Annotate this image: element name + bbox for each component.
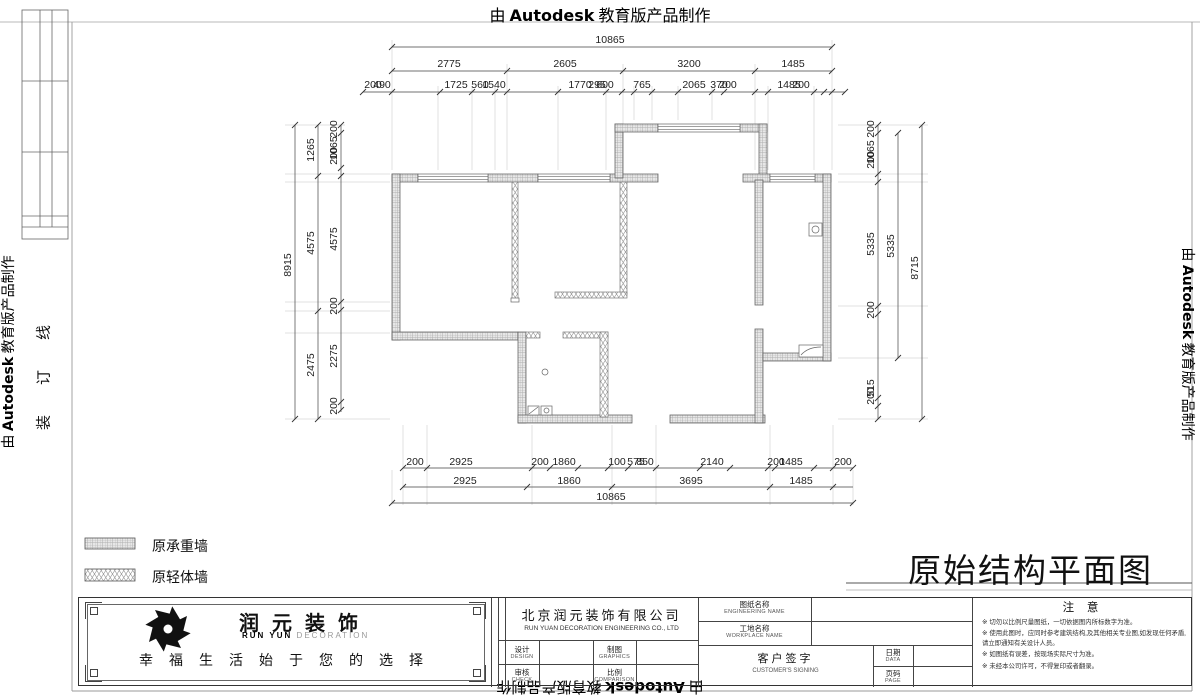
note-item: ※切勿以比例尺量图纸，一切依据图内所标数字为准。 — [982, 618, 1188, 627]
dim-label: 2925 — [449, 456, 473, 468]
margin-revision-table — [22, 10, 68, 239]
dim-label: 2065 — [682, 79, 706, 91]
banner-suffix: 教育版产品制作 — [598, 8, 710, 25]
corner-ornament — [469, 602, 486, 619]
field-workplace-name-cn: 工地名称 — [698, 624, 811, 633]
note-item: ※未经本公司许可，不得复印或者翻录。 — [982, 662, 1188, 671]
grid-line — [491, 598, 492, 687]
dim-label: 1540 — [482, 79, 506, 91]
dim-label: 600 — [596, 79, 614, 91]
field-page-cn: 页码 — [873, 669, 913, 678]
legend-label-load-bearing: 原承重墙 — [152, 536, 208, 556]
notes-panel: 注 意 ※切勿以比例尺量图纸，一切依据图内所标数字为准。 ※使用此图时，应同时参… — [974, 598, 1192, 671]
field-customer-signing-en: CUSTOMER'S SIGNING — [698, 668, 873, 674]
dim-label: 1725 — [444, 79, 468, 91]
grid-line — [498, 598, 499, 687]
light-walls — [512, 182, 627, 417]
dim-label: 200 — [328, 147, 340, 165]
note-item: ※使用此图时，应同时参考建筑结构,及其他相关专业图,如发现任何矛盾,请立即通知有… — [982, 629, 1188, 648]
dim-label: 200 — [865, 387, 877, 405]
floorplan-drawing: 10865 2775 2605 3200 1485 200 490 1725 5… — [0, 0, 1200, 700]
company-name-en: RUN YUAN DECORATION ENGINEERING CO., LTD — [505, 625, 698, 632]
field-engineering-name-en: ENGINEERING NAME — [698, 609, 811, 616]
corner-ornament — [85, 602, 102, 619]
legend-label-light-wall: 原轻体墙 — [152, 567, 208, 587]
dim-label: 1265 — [305, 138, 317, 162]
dim-label: 200 — [719, 79, 737, 91]
grid-line — [698, 621, 972, 622]
company-logo — [145, 606, 191, 652]
dim-label: 8715 — [909, 256, 921, 280]
dim-label: 490 — [373, 79, 391, 91]
brand-en-part1: RUN YUN — [242, 631, 292, 640]
note-marker: ※ — [982, 663, 987, 670]
dim-label: 1485 — [789, 475, 813, 487]
field-page: 页码 PAGE — [873, 669, 913, 685]
note-marker: ※ — [982, 630, 987, 637]
dim-label: 3200 — [677, 58, 701, 70]
field-date-cn: 日期 — [873, 648, 913, 657]
grid-line — [498, 664, 698, 665]
dim-label: 1860 — [557, 475, 581, 487]
dim-label: 5335 — [885, 234, 897, 258]
banner-brand: Autodesk — [1, 357, 17, 431]
dim-label: 765 — [633, 79, 651, 91]
dim-label: 2140 — [700, 456, 724, 468]
field-page-en: PAGE — [873, 678, 913, 685]
binding-line-label: 装订线 — [33, 283, 54, 443]
banner-brand: Autodesk — [1179, 265, 1195, 339]
notes-title: 注 意 — [974, 599, 1192, 615]
dim-label: 8915 — [282, 253, 294, 277]
autodesk-banner-top: 由 Autodesk 教育版产品制作 — [0, 2, 1200, 26]
dim-label: 2475 — [305, 353, 317, 377]
note-text: 切勿以比例尺量图纸，一切依据图内所标数字为准。 — [989, 619, 1136, 626]
dim-label: 100 — [608, 456, 626, 468]
corner-ornament — [469, 665, 486, 682]
banner-suffix: 教育版产品制作 — [2, 255, 17, 353]
field-check-cn: 审核 — [505, 668, 539, 677]
dim-label: 200 — [328, 297, 340, 315]
shower-tray-icon — [528, 406, 539, 415]
dim-label: 200 — [865, 120, 877, 138]
field-date: 日期 DATA — [873, 648, 913, 664]
floor-drain-icon — [542, 369, 548, 375]
grid-line — [972, 598, 973, 687]
dim-label: 10865 — [596, 491, 625, 503]
dim-label: 1485 — [781, 58, 805, 70]
field-graphics-cn: 制图 — [593, 645, 636, 654]
field-date-en: DATA — [873, 657, 913, 664]
dim-label: 200 — [865, 301, 877, 319]
company-name-cn: 北京润元装饰有限公司 — [505, 605, 698, 624]
dim-label: 850 — [636, 456, 654, 468]
dim-label: 10865 — [595, 34, 624, 46]
dim-label: 200 — [865, 151, 877, 169]
dim-label: 200 — [531, 456, 549, 468]
balcony-window — [658, 124, 740, 132]
washbasin-icon — [809, 223, 822, 236]
field-check: 审核 CHECK — [505, 668, 539, 684]
banner-prefix: 由 — [490, 8, 506, 25]
note-text: 如图纸有误差，按现场实际尺寸为准。 — [989, 651, 1098, 658]
note-text: 使用此图时，应同时参考建筑结构,及其他相关专业图,如发现任何矛盾,请立即通知有关… — [982, 630, 1186, 646]
note-text: 未经本公司许可，不得复印或者翻录。 — [989, 663, 1098, 670]
dim-label: 4575 — [305, 231, 317, 255]
dim-label: 2925 — [453, 475, 477, 487]
window — [770, 174, 815, 182]
dim-label: 200 — [406, 456, 424, 468]
sink-icon — [541, 406, 552, 415]
field-scale-en: COMPARISON — [593, 677, 636, 684]
note-marker: ※ — [982, 651, 987, 658]
load-bearing-walls — [392, 124, 831, 423]
dim-label: 200 — [792, 79, 810, 91]
dim-label: 1860 — [552, 456, 576, 468]
window — [538, 174, 610, 182]
bathtub-icon — [799, 345, 823, 357]
door-jamb — [511, 298, 519, 302]
field-engineering-name-cn: 图纸名称 — [698, 600, 811, 609]
extension-lines — [285, 40, 928, 505]
field-customer-signing-cn: 客户签字 — [698, 650, 873, 666]
title-block: 润元装饰 RUN YUN DECORATION 幸福生活始于您的选择 北京润元装… — [78, 597, 1192, 686]
fixtures — [511, 223, 823, 415]
field-graphics: 制图 GRAPHICS — [593, 645, 636, 661]
corner-ornament — [85, 665, 102, 682]
autodesk-banner-left: 由 Autodesk 教育版产品制作 — [0, 202, 18, 502]
field-design-cn: 设计 — [505, 645, 539, 654]
note-marker: ※ — [982, 619, 987, 626]
dim-label: 200 — [834, 456, 852, 468]
brand-en-part2: DECORATION — [297, 631, 370, 640]
field-scale: 比例 COMPARISON — [593, 668, 636, 684]
field-workplace-name-en: WORKPLACE NAME — [698, 633, 811, 640]
banner-prefix: 由 — [1179, 247, 1194, 261]
grid-line — [498, 640, 698, 641]
dim-label: 200 — [328, 120, 340, 138]
dim-label: 2275 — [328, 344, 340, 368]
field-customer-signing: 客户签字 CUSTOMER'S SIGNING — [698, 650, 873, 674]
legend-swatch-load-bearing — [85, 538, 135, 549]
legend-swatch-light-wall — [85, 569, 135, 581]
grid-line — [873, 666, 972, 667]
dim-label: 4575 — [328, 227, 340, 251]
field-scale-cn: 比例 — [593, 668, 636, 677]
brand-name-en: RUN YUN DECORATION — [242, 631, 369, 640]
dim-label: 2605 — [553, 58, 577, 70]
dim-label: 5335 — [865, 232, 877, 256]
field-graphics-en: GRAPHICS — [593, 654, 636, 661]
note-item: ※如图纸有误差，按现场实际尺寸为准。 — [982, 650, 1188, 659]
autodesk-banner-right: 由 Autodesk 教育版产品制作 — [1178, 194, 1198, 494]
window — [418, 174, 488, 182]
drawing-title: 原始结构平面图 — [908, 544, 1192, 592]
banner-suffix: 教育版产品制作 — [1179, 343, 1194, 441]
field-check-en: CHECK — [505, 677, 539, 684]
field-design: 设计 DESIGN — [505, 645, 539, 661]
grid-line — [698, 645, 972, 646]
banner-brand: Autodesk — [510, 6, 595, 25]
field-design-en: DESIGN — [505, 654, 539, 661]
dim-label: 200 — [328, 397, 340, 415]
banner-prefix: 由 — [2, 435, 17, 449]
dim-label: 2775 — [437, 58, 461, 70]
dim-label: 3695 — [679, 475, 703, 487]
legend-swatches — [85, 538, 135, 581]
field-workplace-name: 工地名称 WORKPLACE NAME — [698, 624, 811, 640]
field-engineering-name: 图纸名称 ENGINEERING NAME — [698, 600, 811, 616]
brand-slogan: 幸福生活始于您的选择 — [119, 650, 459, 670]
dim-label: 1485 — [779, 456, 803, 468]
